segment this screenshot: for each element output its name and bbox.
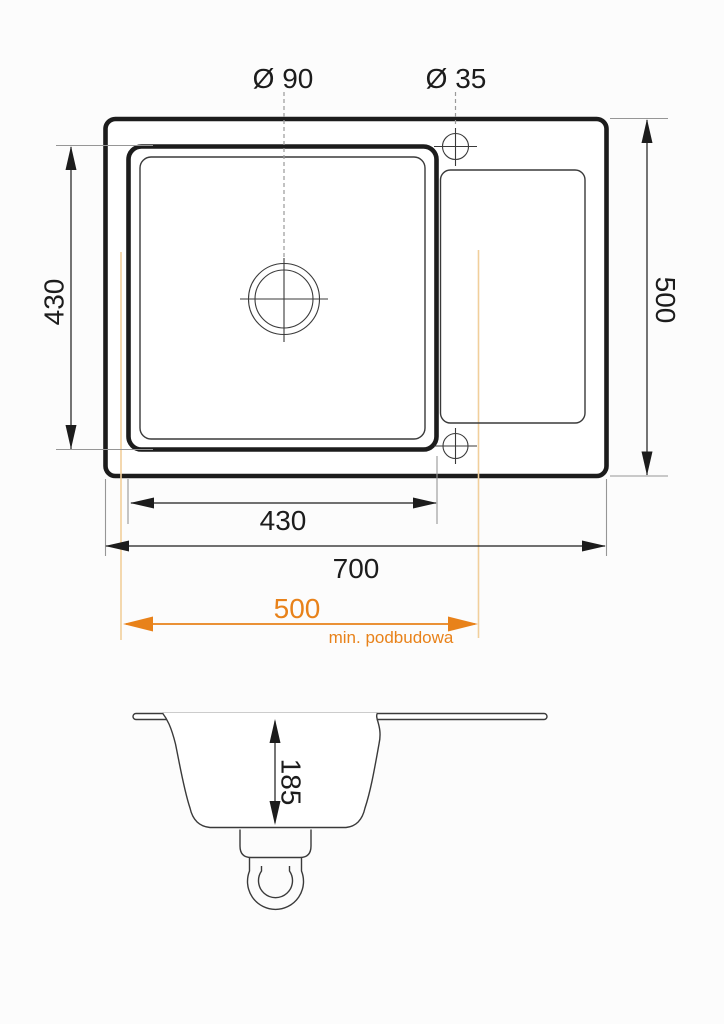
- dimension-value: 500: [274, 593, 321, 624]
- arrow-left-icon: [105, 541, 129, 552]
- arrow-right-icon: [413, 498, 437, 509]
- sink-top-view: Ø 90 Ø 35 430 500 430: [39, 63, 682, 647]
- arrow-up-icon: [642, 119, 653, 143]
- dimension-value: 430: [39, 279, 70, 326]
- arrow-left-icon: [123, 617, 153, 632]
- drain-trap-inner: [259, 866, 293, 898]
- dimension-value: 700: [333, 553, 380, 584]
- dimension-value: 185: [276, 759, 307, 806]
- arrow-right-icon: [582, 541, 606, 552]
- sink-technical-drawing: Ø 90 Ø 35 430 500 430: [0, 0, 724, 1024]
- arrow-left-icon: [130, 498, 154, 509]
- drain-neck: [250, 858, 302, 867]
- arrow-down-icon: [66, 425, 77, 449]
- faucet-diameter-label: Ø 35: [426, 63, 487, 94]
- dimension-overall-width: 700: [105, 479, 607, 584]
- dimension-value: 430: [260, 505, 307, 536]
- dimension-note: min. podbudowa: [329, 628, 454, 647]
- dimension-min-cabinet: 500 min. podbudowa: [123, 593, 478, 647]
- bowl-fill: [163, 713, 381, 828]
- drain-trap-outer: [248, 866, 304, 909]
- drain-diameter-label: Ø 90: [253, 63, 314, 94]
- arrow-up-icon: [66, 146, 77, 170]
- arrow-down-icon: [642, 452, 653, 476]
- drain-assembly: [240, 830, 311, 910]
- sink-section-view: 185: [133, 713, 547, 909]
- dimension-overall-depth: 500: [610, 119, 681, 477]
- dimension-value: 500: [650, 277, 681, 324]
- drain-flange: [240, 830, 311, 858]
